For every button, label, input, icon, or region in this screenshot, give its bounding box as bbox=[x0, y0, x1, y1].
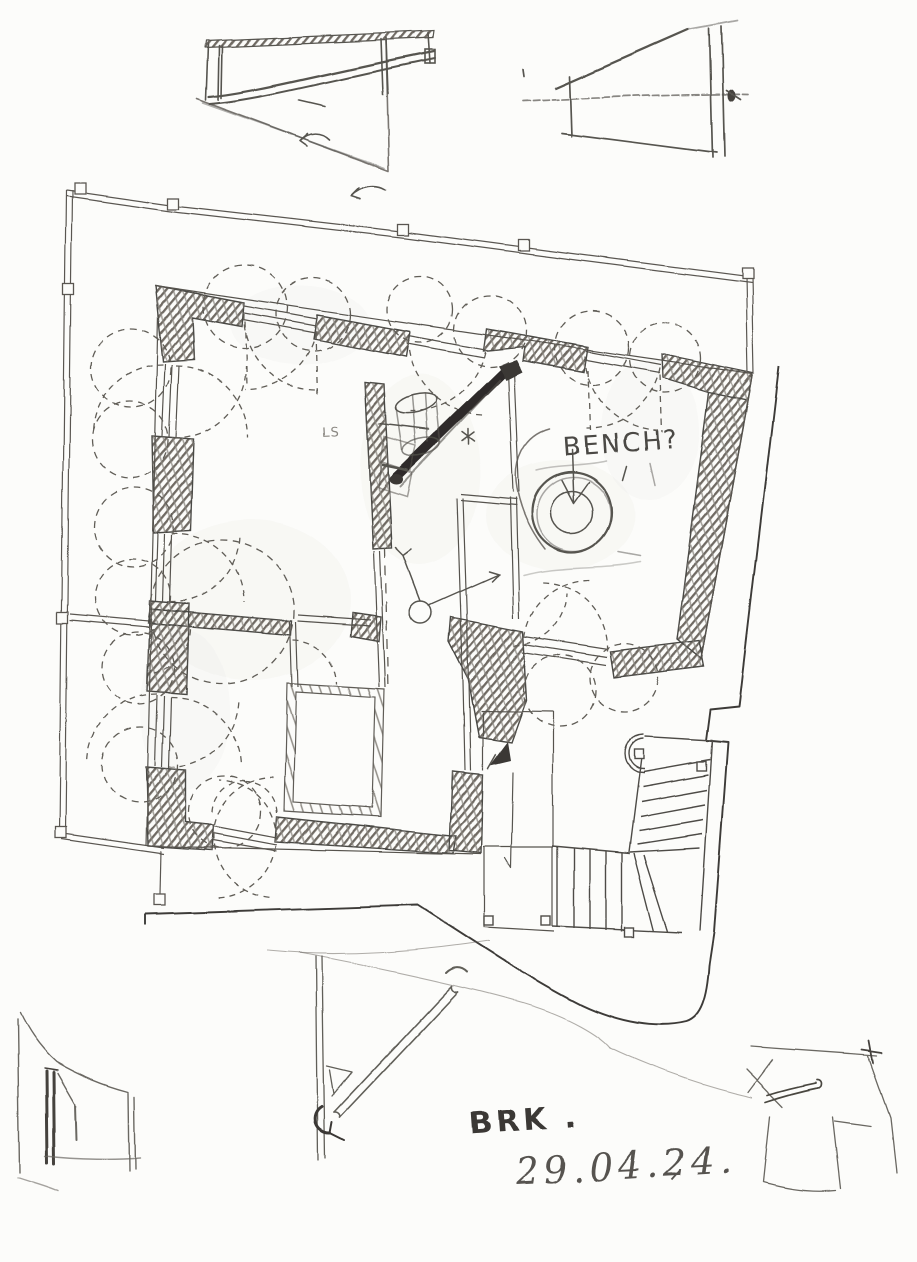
date-annotation: 29.04.24. bbox=[513, 1138, 737, 1193]
initials-annotation: BRK . bbox=[468, 1099, 581, 1142]
corridor-centerline bbox=[385, 548, 388, 690]
court-arrow-doodle bbox=[488, 741, 513, 868]
stairs bbox=[484, 735, 712, 936]
sketch-top-left-bench-perspective bbox=[197, 31, 434, 199]
sketch-layer: BENCH? LS BRK . 29.04.24. bbox=[17, 21, 896, 1193]
sketch-page: BENCH? LS BRK . 29.04.24. bbox=[0, 0, 917, 1262]
floor-plan-sketch: BENCH? LS BRK . 29.04.24. bbox=[0, 0, 917, 1262]
sketch-bottom-left-posts-perspective bbox=[17, 1013, 140, 1191]
graphite-smudges bbox=[140, 285, 700, 790]
stair-posts bbox=[484, 750, 706, 936]
sketch-bottom-right-box-detail bbox=[746, 1041, 896, 1191]
ls-annotation: LS bbox=[322, 424, 340, 440]
storage-room-walls bbox=[284, 683, 384, 817]
sketch-top-right-wall-perspective bbox=[522, 21, 748, 158]
hook-doodle bbox=[766, 1080, 822, 1102]
